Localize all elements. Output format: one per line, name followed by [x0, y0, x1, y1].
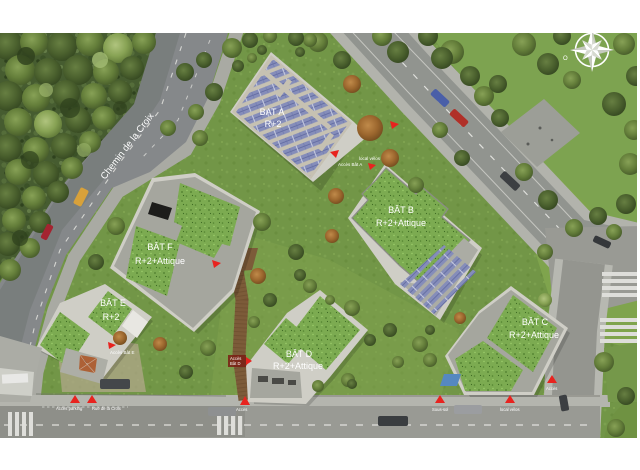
svg-text:Accès Bât A: Accès Bât A: [338, 162, 362, 167]
svg-text:BÂT F: BÂT F: [147, 242, 173, 252]
svg-text:Rue de la Croix: Rue de la Croix: [92, 406, 122, 411]
svg-text:R+2: R+2: [103, 312, 120, 322]
svg-text:R+2+Attique: R+2+Attique: [376, 218, 426, 228]
svg-text:BÂT B: BÂT B: [388, 205, 414, 215]
svg-text:R+2+Attique: R+2+Attique: [273, 361, 323, 371]
svg-text:local vélos: local vélos: [359, 156, 381, 161]
svg-text:local vélos: local vélos: [500, 407, 520, 412]
svg-text:R+2: R+2: [265, 119, 282, 129]
svg-text:R+2+Attique: R+2+Attique: [509, 330, 559, 340]
svg-text:Accès parking: Accès parking: [56, 406, 83, 411]
svg-text:BÂT D: BÂT D: [286, 349, 313, 359]
svg-text:BÂT C: BÂT C: [522, 317, 549, 327]
svg-text:Accès Bât E: Accès Bât E: [110, 350, 135, 355]
svg-text:BAT A: BAT A: [260, 107, 285, 117]
svg-text:BÂT E: BÂT E: [100, 298, 126, 308]
svg-text:Bât D: Bât D: [230, 361, 240, 366]
svg-text:Sous-sol: Sous-sol: [432, 407, 448, 412]
svg-text:Accès: Accès: [236, 407, 247, 412]
svg-text:R+2+Attique: R+2+Attique: [135, 256, 185, 266]
svg-text:O: O: [563, 56, 568, 62]
svg-text:Accès: Accès: [546, 386, 557, 391]
